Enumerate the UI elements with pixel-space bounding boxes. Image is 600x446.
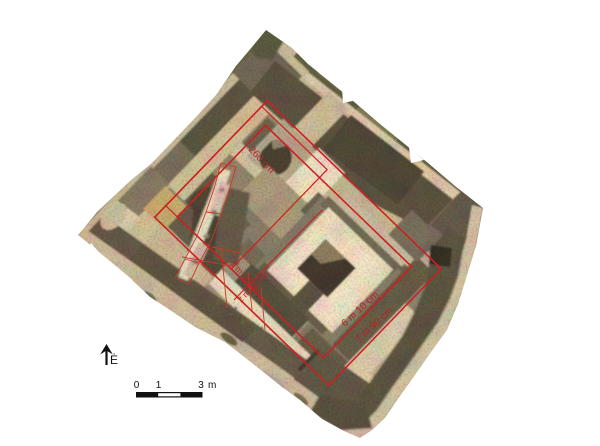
svg-text:0: 0 bbox=[134, 380, 140, 391]
svg-text:Ė: Ė bbox=[110, 353, 118, 367]
svg-text:m: m bbox=[208, 380, 216, 391]
svg-text:3: 3 bbox=[198, 380, 204, 391]
svg-text:1: 1 bbox=[156, 380, 162, 391]
